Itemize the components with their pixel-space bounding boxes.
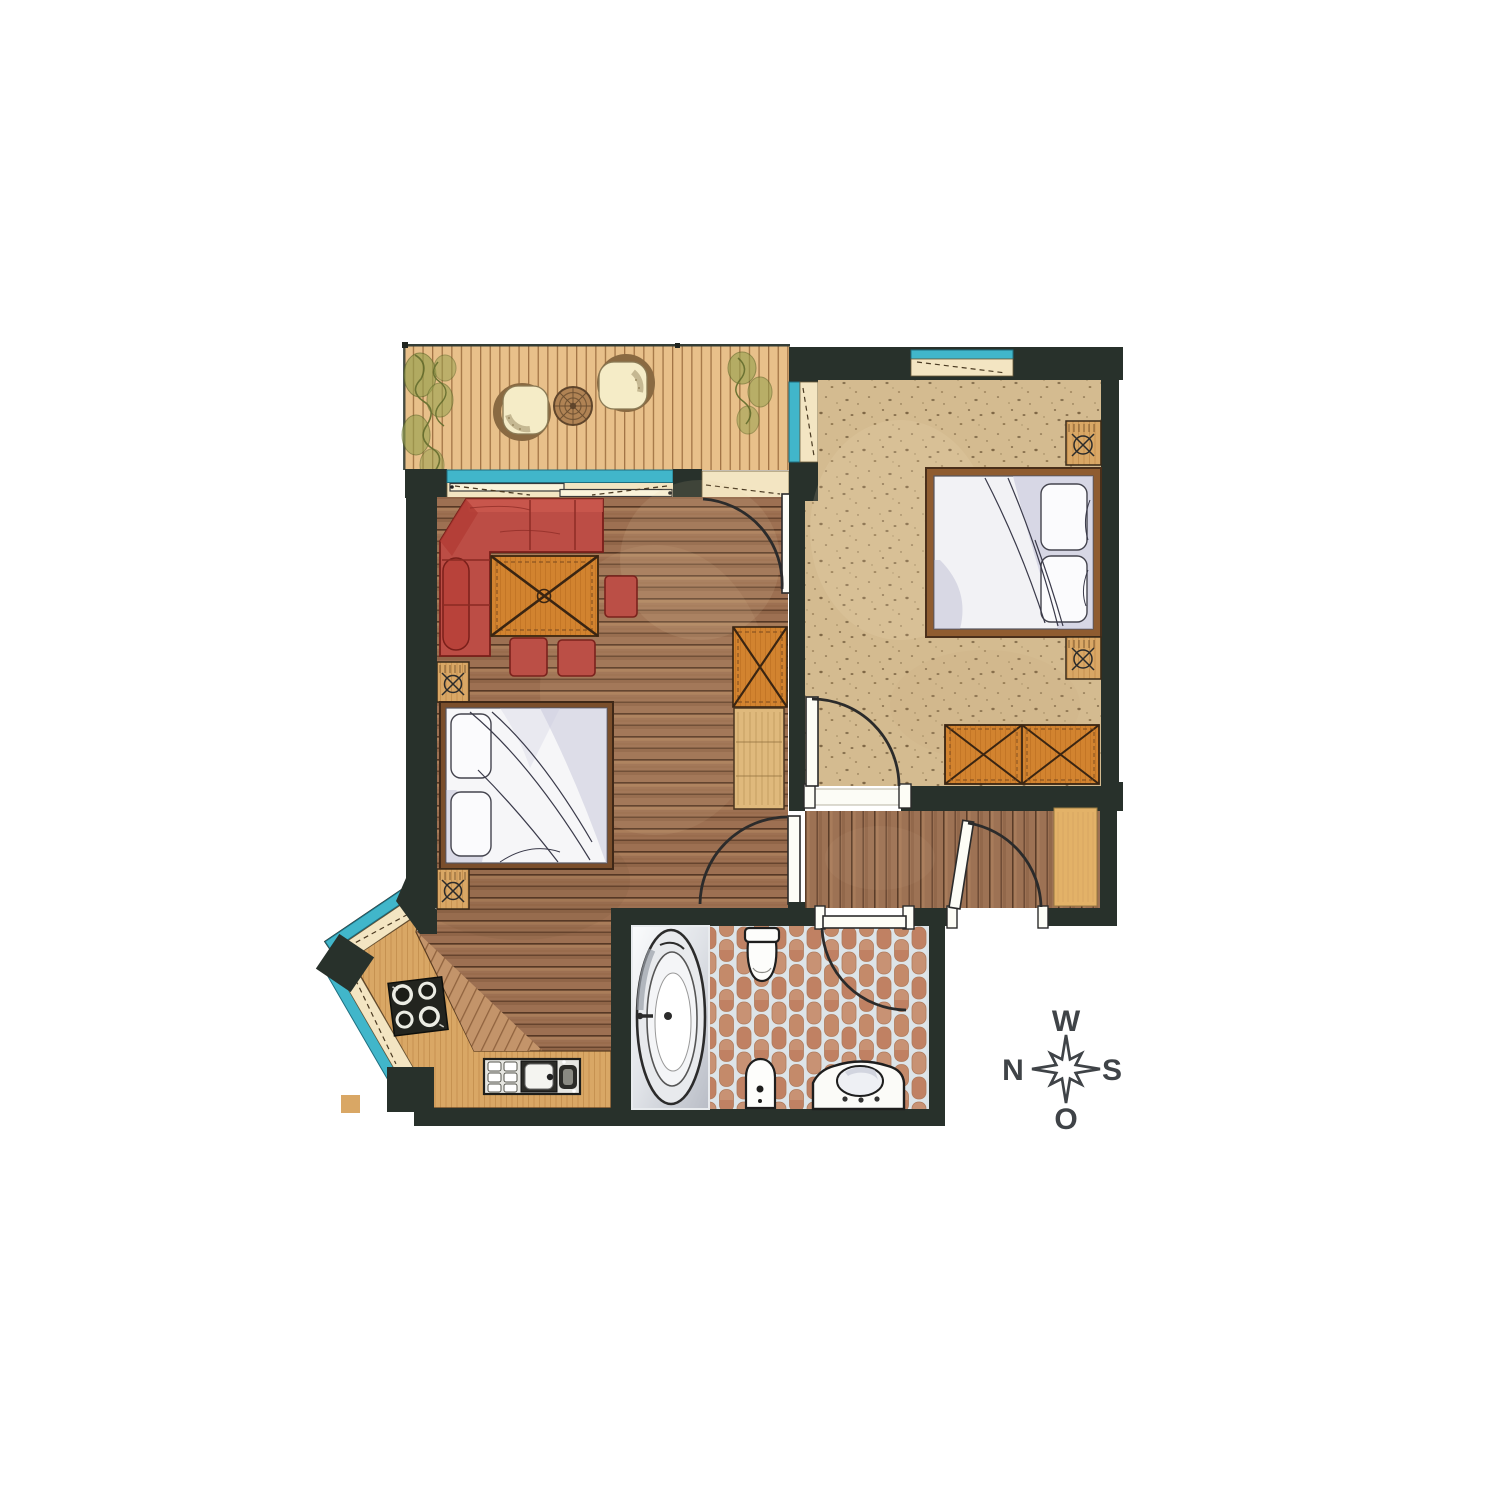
svg-text:O: O [1054, 1103, 1077, 1136]
svg-text:S: S [1102, 1054, 1122, 1087]
svg-text:N: N [1002, 1054, 1024, 1087]
svg-text:W: W [1052, 1005, 1081, 1038]
